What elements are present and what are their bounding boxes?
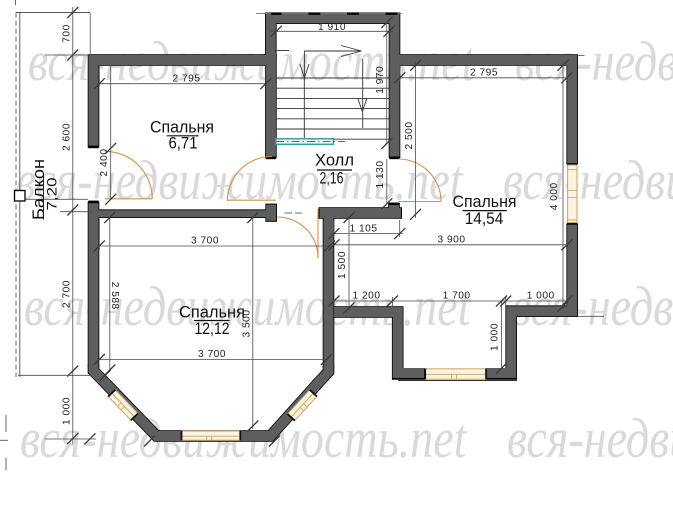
svg-text:Холл: Холл	[315, 151, 354, 170]
svg-text:1 000: 1 000	[490, 323, 501, 351]
svg-text:1 105: 1 105	[350, 223, 378, 234]
svg-text:1 000: 1 000	[62, 397, 73, 425]
svg-text:2 500: 2 500	[404, 122, 415, 150]
svg-text:3 700: 3 700	[198, 349, 226, 360]
svg-text:1 500: 1 500	[337, 251, 348, 279]
svg-text:700: 700	[62, 24, 73, 43]
svg-text:6,71: 6,71	[169, 134, 198, 153]
svg-text:2 795: 2 795	[470, 68, 498, 79]
svg-text:12,12: 12,12	[195, 319, 230, 338]
svg-text:2 795: 2 795	[173, 74, 201, 85]
svg-text:1 200: 1 200	[353, 291, 381, 302]
svg-text:вся-недвижимость.net: вся-недвижимость.net	[507, 408, 673, 470]
svg-text:вся-недвижимость.net: вся-недвижимость.net	[503, 150, 673, 212]
svg-text:2 400: 2 400	[99, 149, 110, 177]
svg-text:2,16: 2,16	[320, 169, 344, 188]
svg-text:4 000: 4 000	[549, 182, 560, 210]
svg-text:1 000: 1 000	[527, 291, 555, 302]
svg-text:14,54: 14,54	[465, 209, 504, 228]
svg-text:2 588: 2 588	[109, 282, 120, 310]
svg-text:1 130: 1 130	[375, 161, 386, 189]
svg-text:1 970: 1 970	[375, 66, 386, 94]
svg-text:2 600: 2 600	[62, 123, 73, 151]
svg-text:1 910: 1 910	[318, 22, 346, 33]
svg-text:3 900: 3 900	[438, 235, 466, 246]
svg-text:2 700: 2 700	[62, 280, 73, 308]
svg-text:3 700: 3 700	[191, 236, 219, 247]
svg-text:1 700: 1 700	[443, 291, 471, 302]
svg-text:7,20: 7,20	[45, 178, 60, 211]
